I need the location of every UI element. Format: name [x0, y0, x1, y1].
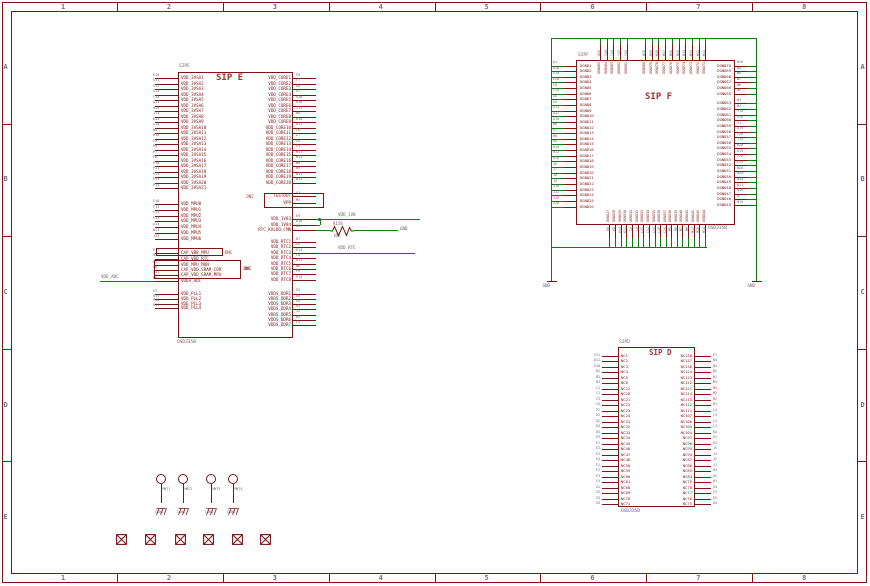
frame-col-label: 2 — [167, 575, 171, 582]
pin-number: H4 — [713, 469, 717, 472]
mounting-hole[interactable] — [206, 474, 216, 484]
pin-label: VDDS_DDR7 — [206, 323, 291, 327]
pin-label: VDD_CORE3 — [206, 87, 291, 91]
pin-label: DGND19 — [580, 165, 594, 169]
fiducial-mark[interactable] — [175, 532, 186, 543]
pin-label: DGND50 — [655, 175, 731, 179]
pin-label: DGND61 — [655, 113, 731, 117]
pin-label: DGND10 — [580, 114, 594, 118]
pin-label: NC105 — [640, 425, 692, 429]
gnd-bus-bottom — [551, 247, 707, 248]
pin-stub — [602, 433, 618, 434]
pin-stub — [564, 111, 576, 112]
pin-stub — [564, 167, 576, 168]
pin-stub — [695, 394, 711, 395]
net-wire — [747, 194, 756, 195]
net-wire — [705, 238, 706, 247]
pin-number: J13 — [153, 112, 159, 116]
pin-number: E14 — [296, 249, 302, 253]
net-wire — [747, 82, 756, 83]
pin-number: E7 — [153, 290, 157, 294]
pin-label: NC59 — [621, 469, 630, 473]
mount-wire — [161, 484, 162, 503]
pin-number: L7 — [296, 134, 300, 138]
pin-label: DGND62 — [655, 107, 731, 111]
pin-number: W7 — [737, 78, 741, 81]
pin-number: J19 — [553, 197, 559, 200]
frame-tick — [752, 574, 753, 583]
resistor-r158[interactable] — [330, 224, 354, 236]
pin-label: VDD_CORE1 — [206, 76, 291, 80]
pin-number: L2 — [713, 420, 717, 423]
pin-label: DGND54 — [655, 152, 731, 156]
pin-number: G14 — [153, 101, 159, 105]
pin-label: VDD_CORE20 — [206, 181, 291, 185]
pin-stub — [695, 361, 711, 362]
pin-number: F3 — [590, 475, 600, 478]
pin-label: VDD_1V83 — [206, 217, 291, 221]
pin-number: F8 — [553, 84, 557, 87]
pin-stub — [695, 488, 711, 489]
net-wire — [682, 238, 683, 247]
pin-label: DGND79 — [650, 62, 653, 74]
fiducial-mark[interactable] — [145, 532, 156, 543]
pin-number: G5 — [590, 502, 600, 505]
pin-stub — [155, 139, 178, 140]
frame-tick — [2, 461, 11, 462]
fiducial-mark[interactable] — [260, 532, 271, 543]
net-wire — [643, 238, 644, 247]
pin-label: VDD_CORE13 — [206, 142, 291, 146]
pin-label: NC48 — [621, 458, 630, 462]
pin-number: Y20 — [605, 50, 608, 56]
pin-label: VDD_CORE15 — [206, 153, 291, 157]
pin-number: U19 — [737, 127, 743, 130]
pin-number: K8 — [613, 227, 616, 231]
pin-stub — [602, 455, 618, 456]
junction-dot — [318, 218, 321, 221]
mounting-hole[interactable] — [156, 474, 166, 484]
pin-number: L9 — [296, 145, 300, 149]
pin-number: L4 — [713, 409, 717, 412]
net-wire — [626, 238, 627, 247]
pin-number: L13 — [653, 227, 656, 233]
pin-number: J4 — [713, 453, 717, 456]
net-wire — [747, 115, 756, 116]
pin-label: DGND82 — [618, 62, 621, 74]
pin-number: W5 — [737, 89, 741, 92]
pin-number: A1 — [553, 61, 557, 64]
pin-number: W3 — [737, 99, 741, 102]
pin-number: F1 — [590, 464, 600, 467]
mount-wire — [211, 484, 212, 503]
pin-number: F13 — [153, 217, 159, 221]
pin-number: F19 — [553, 89, 559, 92]
dnc-box-sram — [154, 260, 241, 279]
pin-number: C4 — [590, 403, 600, 406]
pin-label: DGND33 — [641, 210, 644, 222]
pin-label: NC75 — [640, 502, 692, 506]
net-wire — [638, 238, 639, 247]
pin-stub — [602, 378, 618, 379]
pin-number: H6 — [553, 123, 557, 126]
pin-number: W19 — [650, 50, 653, 56]
frame-col-label: 3 — [273, 575, 277, 582]
pin-label: VDD_3VSA19 — [181, 175, 206, 179]
pin-number: P13 — [153, 178, 159, 182]
pin-stub — [564, 156, 576, 157]
frame-tick — [117, 574, 118, 583]
pin-number: L1 — [713, 425, 717, 428]
pin-label: DGND52 — [655, 163, 731, 167]
net-wire — [747, 71, 756, 72]
pin-label: NC3 — [621, 365, 628, 369]
pin-number: L12 — [647, 227, 650, 233]
pin-label: DGND44 — [703, 210, 706, 222]
frame-col-label: 7 — [696, 575, 700, 582]
pin-number: P15 — [153, 184, 159, 188]
pin-number: F10 — [153, 200, 159, 204]
pin-number: P14 — [296, 276, 302, 280]
pin-stub — [564, 116, 576, 117]
pin-label: NC31 — [621, 420, 630, 424]
pin-label: VDD_3VSA17 — [181, 164, 206, 168]
pin-stub — [564, 88, 576, 89]
frame-row-label: C — [4, 289, 8, 296]
frame-row-label: E — [4, 514, 8, 521]
pin-label: DGND20 — [580, 171, 594, 175]
pin-label: DGND42 — [692, 210, 695, 222]
net-wire — [671, 238, 672, 247]
pin-label: NC24 — [621, 414, 630, 418]
pin-label: VDD_CORE17 — [206, 164, 291, 168]
frame-row-label: C — [861, 289, 865, 296]
pin-number: M8 — [686, 227, 689, 231]
pin-stub — [695, 427, 711, 428]
pin-number: W9 — [737, 67, 741, 70]
frame-tick — [2, 349, 11, 350]
pin-label: NC58 — [621, 464, 630, 468]
pin-label: DGND75 — [677, 62, 680, 74]
pin-label: DGND23 — [580, 188, 594, 192]
pin-label: VDD_MPU1 — [181, 208, 201, 212]
pin-label: NC68 — [621, 486, 630, 490]
frame-col-label: 5 — [484, 4, 488, 11]
pin-stub — [695, 493, 711, 494]
mounting-hole[interactable] — [228, 474, 238, 484]
pin-number: J6 — [553, 163, 557, 166]
pin-number: G9 — [553, 101, 557, 104]
pin-label: DGND29 — [619, 210, 622, 222]
pin-label: VDD_3VSA3 — [181, 87, 204, 91]
pin-label: VDD_CORE5 — [206, 98, 291, 102]
pin-number: W20 — [643, 50, 646, 56]
frame-row-label: A — [861, 64, 865, 71]
net-wire — [747, 94, 756, 95]
pin-label: DGND85 — [598, 62, 601, 74]
pin-stub — [695, 411, 711, 412]
pin-stub — [695, 449, 711, 450]
pin-stub — [293, 325, 316, 326]
pin-stub — [602, 416, 618, 417]
pin-number: G3 — [590, 497, 600, 500]
pin-number: M15 — [153, 134, 159, 138]
chassis-ground-label: CGND — [155, 511, 163, 515]
pin-number: H12 — [553, 151, 559, 154]
pin-label: VDD_MPU2 — [181, 214, 201, 218]
pin-label: DGND65 — [655, 92, 731, 96]
pin-number: M3 — [713, 392, 717, 395]
pin-number: R7 — [737, 195, 741, 198]
pin-label: RTC_KALDO_CMN — [206, 228, 291, 232]
frame-col-label: 5 — [484, 575, 488, 582]
chassis-ground-label: CGND — [227, 511, 235, 515]
pin-stub — [602, 372, 618, 373]
pin-label: VDD_CORE7 — [206, 109, 291, 113]
pin-number: M13 — [692, 227, 695, 233]
pin-number: D3 — [590, 425, 600, 428]
net-wire — [747, 171, 756, 172]
pin-number: N5 — [713, 365, 717, 368]
pin-label: NC96 — [640, 442, 692, 446]
pin-label: NC94 — [640, 453, 692, 457]
pin-number: H2 — [713, 475, 717, 478]
pin-label: DGND9 — [580, 109, 591, 113]
pin-stub — [602, 504, 618, 505]
pin-number: H14 — [153, 107, 159, 111]
pin-number: N5 — [153, 129, 157, 133]
pin-number: F14 — [153, 96, 159, 100]
net-wire — [551, 207, 564, 208]
pin-number: K5 — [296, 316, 300, 320]
pin-stub — [602, 482, 618, 483]
pin-number: G2 — [590, 491, 600, 494]
pin-label: VDD_3VSA7 — [181, 109, 204, 113]
pin-stub — [735, 205, 747, 206]
pin-stub — [564, 77, 576, 78]
pin-label: DGND36 — [658, 210, 661, 222]
net-wire — [747, 77, 756, 78]
gnd-bus-top — [551, 38, 756, 39]
pin-label: VDD_MPU6 — [181, 237, 201, 241]
pin-label: NC5 — [621, 376, 628, 380]
pin-label: NC136 — [640, 365, 692, 369]
pin-stub — [695, 460, 711, 461]
net-wire — [609, 238, 610, 247]
net-wire — [747, 66, 756, 67]
pin-number: E5 — [296, 289, 300, 293]
pin-number: F5 — [713, 491, 717, 494]
frame-tick — [858, 349, 867, 350]
pin-number: E1 — [590, 442, 600, 445]
pin-number: M6 — [675, 227, 678, 231]
fiducial-mark[interactable] — [203, 532, 214, 543]
pin-label: DGND41 — [686, 210, 689, 222]
pin-stub — [564, 139, 576, 140]
pin-stub — [602, 405, 618, 406]
pin-label: DGND14 — [580, 137, 594, 141]
pin-stub — [564, 150, 576, 151]
pin-stub — [695, 455, 711, 456]
frame-row-label: B — [861, 176, 865, 183]
net-wire-gnd — [354, 230, 398, 231]
net-wire-vdd-1v8 — [316, 219, 420, 220]
pin-label: DGND15 — [580, 142, 594, 146]
pin-label: DGND49 — [655, 180, 731, 184]
frame-tick — [223, 574, 224, 583]
pin-number: N20 — [737, 167, 743, 170]
pin-label: NC137 — [640, 359, 692, 363]
fiducial-mark[interactable] — [232, 532, 243, 543]
pin-number: D2 — [590, 420, 600, 423]
pin-number: F4 — [590, 480, 600, 483]
pin-number: G11 — [553, 106, 559, 109]
pin-stub — [695, 433, 711, 434]
frame-col-label: 4 — [379, 4, 383, 11]
pin-stub — [695, 444, 711, 445]
pin-number: A16 — [553, 67, 559, 70]
pin-number: L6 — [630, 227, 633, 231]
pin-label: NC114 — [640, 392, 692, 396]
pin-stub — [564, 184, 576, 185]
fiducial-mark[interactable] — [116, 532, 127, 543]
pin-number: V18 — [737, 116, 743, 119]
pin-label: VDD_CORE11 — [206, 131, 291, 135]
mount-label: MNT2 — [185, 488, 193, 491]
pin-number: F8 — [296, 254, 300, 258]
pin-number: E20 — [553, 78, 559, 81]
pin-number: F6 — [296, 74, 300, 78]
pin-number: L20 — [664, 227, 667, 233]
pin-number: K1 — [713, 436, 717, 439]
pin-label: DGND55 — [655, 146, 731, 150]
pin-label: VDD_3VSA11 — [181, 131, 206, 135]
pin-stub — [695, 389, 711, 390]
pin-label: DGND43 — [697, 210, 700, 222]
frame-tick — [329, 574, 330, 583]
pin-stub — [564, 207, 576, 208]
pin-number: P5 — [153, 140, 157, 144]
pin-number: G10 — [296, 96, 302, 100]
pin-number: E2 — [590, 447, 600, 450]
pin-label: DGND37 — [664, 210, 667, 222]
net-wire — [655, 238, 656, 247]
pin-number: L8 — [636, 227, 639, 231]
pin-number: J8 — [553, 174, 557, 177]
pin-number: N19 — [737, 172, 743, 175]
pin-label: VDDS_DDR4 — [206, 307, 291, 311]
pin-number: B3 — [590, 381, 600, 384]
pin-label: NC2 — [621, 359, 628, 363]
net-wire — [747, 160, 756, 161]
pin-number: G19 — [553, 118, 559, 121]
pin-number: K13 — [296, 259, 302, 263]
pin-number: G5 — [296, 300, 300, 304]
pin-stub — [564, 161, 576, 162]
pin-label: DGND12 — [580, 126, 594, 130]
pin-label: VDD_CORE19 — [206, 175, 291, 179]
pin-stub — [602, 499, 618, 500]
pin-number: M20 — [697, 227, 700, 233]
pin-label: NC47 — [621, 453, 630, 457]
pin-stub — [695, 378, 711, 379]
pin-label: DGND22 — [580, 182, 594, 186]
pin-stub — [564, 122, 576, 123]
pin-stub — [564, 133, 576, 134]
pin-label: DGND46 — [655, 197, 731, 201]
gnd-symbol — [752, 281, 762, 283]
pin-number: K6 — [296, 112, 300, 116]
pin-number: D10 — [296, 220, 302, 224]
pin-stub — [564, 66, 576, 67]
pin-stub — [564, 99, 576, 100]
pin-stub — [564, 190, 576, 191]
pin-stub — [695, 356, 711, 357]
frame-tick — [858, 461, 867, 462]
pin-stub — [602, 488, 618, 489]
pin-label: VDDA_ADC — [181, 279, 201, 283]
frame-tick — [540, 574, 541, 583]
pin-label: NC32 — [621, 425, 630, 429]
pin-stub — [695, 400, 711, 401]
pin-number: F2 — [590, 469, 600, 472]
pin-stub — [155, 128, 178, 129]
pin-label: DGND2 — [580, 69, 591, 73]
frame-tick — [2, 124, 11, 125]
mount-label: MNT1 — [163, 488, 171, 491]
net-wire — [649, 238, 650, 247]
pin-stub — [602, 383, 618, 384]
pin-number: M19 — [737, 201, 743, 204]
dnc-box-vbb — [156, 248, 223, 257]
pin-stub — [564, 195, 576, 196]
pin-label: NC107 — [640, 414, 692, 418]
pin-number: C1 — [590, 387, 600, 390]
pin-number: L11 — [641, 227, 644, 233]
schematic-sheet: SIPE SIP E OSD335B DNC DNC DNC DNC VDD_A… — [0, 0, 870, 586]
net-wire — [747, 188, 756, 189]
net-wire — [747, 182, 756, 183]
pin-label: DGND71 — [703, 62, 706, 74]
pin-label: DGND84 — [605, 62, 608, 74]
pin-number: M5 — [669, 227, 672, 231]
mount-label: MNT4 — [235, 488, 243, 491]
net-wire — [747, 137, 756, 138]
pin-stub — [564, 173, 576, 174]
net-wire — [747, 205, 756, 206]
pin-number: K2 — [713, 442, 717, 445]
pin-label: DGND24 — [580, 193, 594, 197]
pin-stub — [564, 82, 576, 83]
net-wire — [747, 120, 756, 121]
pin-label: DGND28 — [613, 210, 616, 222]
pin-label: NC97 — [640, 436, 692, 440]
pin-number: N9 — [296, 167, 300, 171]
net-wire — [747, 154, 756, 155]
mounting-hole[interactable] — [178, 474, 188, 484]
pin-number: V11 — [590, 354, 600, 357]
pin-label: DGND35 — [653, 210, 656, 222]
pin-number: E8 — [296, 243, 300, 247]
pin-label: VDD_3VSA15 — [181, 153, 206, 157]
pin-number: B1 — [590, 370, 600, 373]
net-wire — [699, 238, 700, 247]
frame-row-label: D — [861, 402, 865, 409]
pin-stub — [564, 178, 576, 179]
pin-label: DGND72 — [697, 62, 700, 74]
net-wire — [747, 132, 756, 133]
pin-number: N12 — [296, 173, 302, 177]
